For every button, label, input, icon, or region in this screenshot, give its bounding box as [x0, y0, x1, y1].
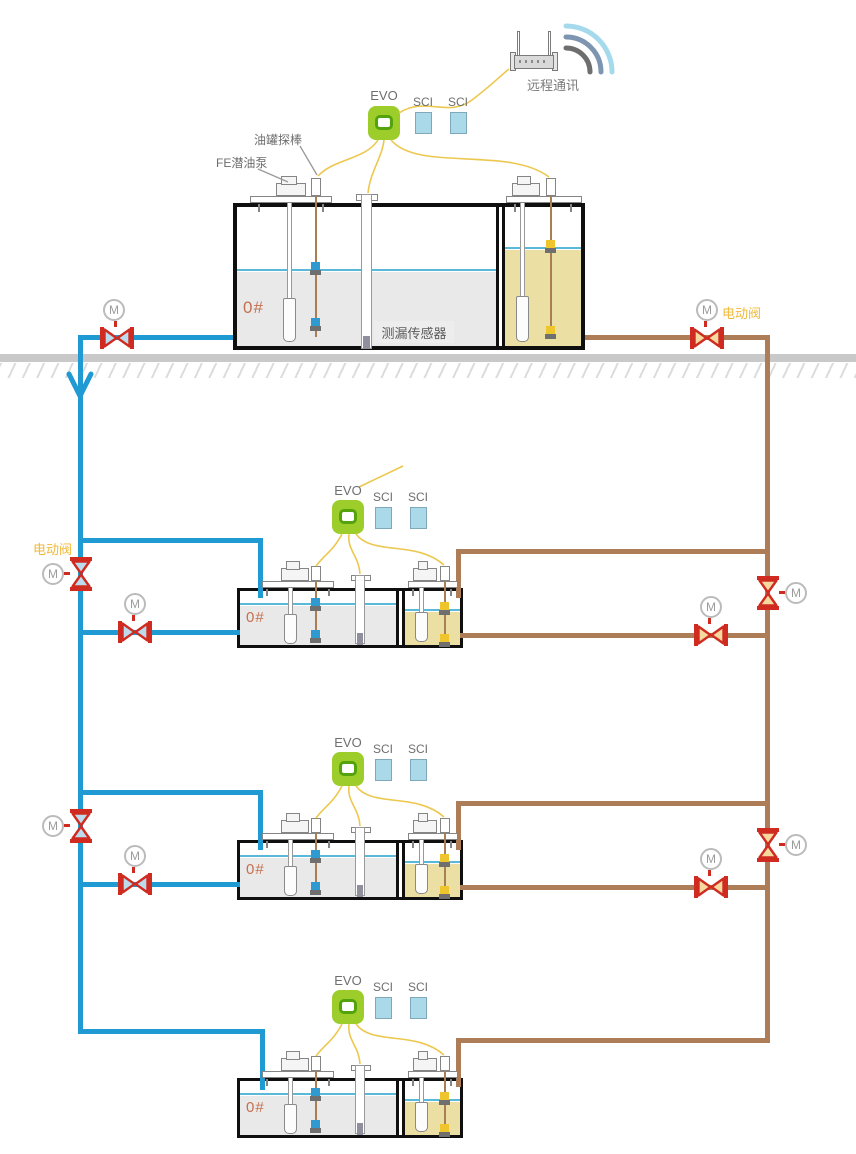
tank2-manhole-lid [408, 581, 458, 588]
submersible-pump-motor-icon [276, 183, 306, 196]
router-antenna-icon [548, 31, 551, 56]
tank2 [237, 588, 463, 648]
tank-probe-head-icon [311, 818, 321, 833]
level-float-icon [311, 318, 320, 326]
float-collar [545, 334, 556, 339]
sci-label: SCI [438, 95, 478, 109]
tank-probe-head-icon [546, 178, 556, 196]
tank2-divider [396, 591, 399, 645]
submersible-pump-motor-icon [512, 183, 540, 196]
float-collar [439, 862, 450, 867]
motor-valve-icon [70, 809, 92, 843]
router-antenna-icon [517, 31, 520, 56]
level-float-icon [440, 602, 449, 610]
float-collar [439, 610, 450, 615]
lid-leg [266, 1079, 268, 1086]
tank1-grade-label: 0# [243, 298, 264, 318]
sci-module-icon [410, 507, 427, 529]
submersible-pump-icon [516, 296, 529, 342]
float-collar [310, 270, 321, 275]
sci-module-icon [410, 759, 427, 781]
evo-label: EVO [328, 973, 368, 988]
leak-sensor-tip [357, 1123, 363, 1135]
lid-leg [450, 589, 452, 596]
return-fill-pipe-row3 [456, 801, 770, 806]
submersible-pump-motor-icon [413, 820, 437, 833]
fill-pipe-row3-drop [258, 790, 263, 850]
level-float-icon [440, 886, 449, 894]
motor-indicator: M [700, 848, 722, 870]
float-collar [310, 1096, 321, 1101]
return-main-pipe [765, 335, 770, 1043]
float-collar [310, 890, 321, 895]
float-collar [310, 1128, 321, 1133]
float-collar [439, 1100, 450, 1105]
tank-probe-head-icon [311, 178, 321, 196]
level-float-icon [311, 1120, 320, 1128]
tank4-divider [402, 1081, 405, 1135]
sci-label: SCI [398, 980, 438, 994]
motor-valve-icon [70, 557, 92, 591]
evo-label: EVO [328, 735, 368, 750]
lid-leg [258, 204, 260, 212]
pump-tube [419, 1078, 424, 1102]
pump-tube [419, 840, 424, 864]
level-float-icon [440, 854, 449, 862]
pump-tube [288, 840, 293, 866]
sci-module-icon [375, 759, 392, 781]
float-collar [310, 638, 321, 643]
motor-indicator: M [696, 299, 718, 321]
return-fill-row2-drop [456, 549, 461, 598]
supply-pipe-row4-drop [260, 1029, 265, 1090]
motor-indicator: M [124, 845, 146, 867]
pump-tube [419, 588, 424, 612]
probe-rod [550, 196, 552, 338]
submersible-pump-motor-icon [413, 1058, 437, 1071]
float-collar [310, 858, 321, 863]
motor-indicator: M [785, 582, 807, 604]
fill-pipe-row2-drop [258, 538, 263, 598]
ground-hatching [0, 363, 856, 378]
valve-stem [114, 321, 117, 327]
sci-label: SCI [398, 742, 438, 756]
motor-indicator: M [700, 596, 722, 618]
submersible-pump-icon [415, 612, 428, 642]
submersible-pump-icon [284, 866, 297, 896]
pump-tube [288, 1078, 293, 1104]
motor-indicator: M [124, 593, 146, 615]
sci-module-icon [375, 997, 392, 1019]
submersible-pump-motor-icon [281, 1058, 309, 1071]
probe-label-leader [300, 146, 317, 175]
pump-tube [287, 203, 292, 298]
motor-valve-icon [757, 576, 779, 610]
lid-leg [328, 1079, 330, 1086]
tank3-divider [402, 843, 405, 897]
tank-probe-head-icon [440, 818, 450, 833]
evo-label: EVO [328, 483, 368, 498]
leak-sensor-tip [357, 633, 363, 645]
router-leds [519, 60, 549, 63]
tank3-divider [396, 843, 399, 897]
lid-leg [328, 589, 330, 596]
wifi-signal-icon [566, 26, 612, 72]
lid-leg [412, 589, 414, 596]
lid-leg [412, 841, 414, 848]
float-collar [439, 1132, 450, 1137]
diagram-canvas: 0# 测漏传感器 EVO SCI SCI 油罐探棒 FE潜油泵 远程通讯 M M… [0, 0, 856, 1154]
tank1-manhole-lid [250, 196, 332, 203]
sci-label: SCI [363, 490, 403, 504]
tank1-divider [496, 207, 499, 346]
valve-stem [64, 824, 70, 827]
motor-indicator: M [42, 563, 64, 585]
electric-valve-label: 电动阀 [33, 539, 72, 558]
return-fill-row3-drop [456, 801, 461, 850]
ground-line [0, 354, 856, 362]
leak-sensor-label: 测漏传感器 [374, 321, 454, 343]
tank-probe-head-icon [311, 1056, 321, 1071]
tank2-grade-label: 0# [246, 609, 265, 626]
return-pipe-tank1 [585, 335, 770, 340]
tank2-divider [402, 591, 405, 645]
lid-leg [266, 589, 268, 596]
return-fill-pipe-row2 [456, 549, 770, 554]
level-float-icon [311, 1088, 320, 1096]
tank4-divider [396, 1081, 399, 1135]
leak-sensor-tip [363, 336, 370, 349]
sci-label: SCI [363, 742, 403, 756]
level-float-icon [546, 240, 555, 248]
evo-console-icon [332, 752, 364, 786]
evo-console-icon [368, 106, 400, 140]
submersible-pump-icon [415, 1102, 428, 1132]
lid-leg [450, 841, 452, 848]
tank4-grade-label: 0# [246, 1099, 265, 1116]
level-float-icon [546, 326, 555, 334]
motor-valve-icon [100, 327, 134, 349]
valve-stem [708, 618, 711, 624]
motor-valve-icon [757, 828, 779, 862]
float-collar [545, 248, 556, 253]
level-float-icon [311, 598, 320, 606]
lid-leg [328, 841, 330, 848]
valve-stem [132, 867, 135, 873]
tank1-manhole-lid [506, 196, 582, 203]
lid-leg [266, 841, 268, 848]
suction-pipe-row2 [78, 630, 240, 635]
level-float-icon [440, 634, 449, 642]
fill-pipe-row3 [78, 790, 263, 795]
tank-probe-head-icon [440, 566, 450, 581]
float-collar [439, 642, 450, 647]
evo-label: EVO [364, 88, 404, 103]
motor-indicator: M [785, 834, 807, 856]
sci-module-icon [410, 997, 427, 1019]
motor-valve-icon [690, 327, 724, 349]
valve-stem [132, 615, 135, 621]
tank1-divider [502, 207, 505, 346]
level-float-icon [440, 1092, 449, 1100]
float-collar [439, 894, 450, 899]
level-float-icon [311, 262, 320, 270]
valve-stem [64, 572, 70, 575]
tank-probe-label: 油罐探棒 [254, 131, 302, 148]
submersible-pump-icon [284, 614, 297, 644]
pump-tube [520, 203, 525, 296]
tank4-manhole-lid [408, 1071, 458, 1078]
supply-main-pipe [78, 335, 83, 1034]
tank4-manhole-lid [262, 1071, 334, 1078]
motor-valve-icon [694, 624, 728, 646]
remote-comm-label: 远程通讯 [527, 75, 579, 94]
lid-leg [322, 204, 324, 212]
evo-console-icon [332, 990, 364, 1024]
tank-probe-head-icon [440, 1056, 450, 1071]
return-pipe-row4 [456, 1038, 770, 1043]
suction-pipe-row3 [78, 882, 240, 887]
submersible-pump-motor-icon [281, 568, 309, 581]
lid-leg [514, 204, 516, 212]
motor-valve-icon [694, 876, 728, 898]
float-collar [310, 326, 321, 331]
motor-valve-icon [118, 621, 152, 643]
tank2-manhole-lid [262, 581, 334, 588]
tank3 [237, 840, 463, 900]
electric-valve-label: 电动阀 [722, 303, 761, 322]
sci-label: SCI [398, 490, 438, 504]
fill-pipe-row2 [78, 538, 263, 543]
level-float-icon [311, 850, 320, 858]
sci-module-icon [415, 112, 432, 134]
submersible-pump-icon [415, 864, 428, 894]
submersible-pump-motor-icon [281, 820, 309, 833]
level-float-icon [311, 630, 320, 638]
sci-label: SCI [363, 980, 403, 994]
tank4 [237, 1078, 463, 1138]
pump-label: FE潜油泵 [216, 154, 267, 171]
tank3-grade-label: 0# [246, 861, 265, 878]
valve-stem [704, 321, 707, 327]
level-float-icon [311, 882, 320, 890]
pump-tube [288, 588, 293, 614]
submersible-pump-icon [283, 298, 296, 342]
lid-leg [450, 1079, 452, 1086]
tank-probe-head-icon [311, 566, 321, 581]
valve-stem [708, 870, 711, 876]
supply-pipe-row4 [78, 1029, 265, 1034]
leak-sensor-tip [357, 885, 363, 897]
level-float-icon [440, 1124, 449, 1132]
lid-leg [570, 204, 572, 212]
float-collar [310, 606, 321, 611]
leak-sensor-tube-icon [361, 194, 372, 349]
submersible-pump-icon [284, 1104, 297, 1134]
sci-module-icon [450, 112, 467, 134]
sci-label: SCI [403, 95, 443, 109]
motor-indicator: M [103, 299, 125, 321]
tank3-manhole-lid [262, 833, 334, 840]
tank3-manhole-lid [408, 833, 458, 840]
return-pipe-row4-drop [456, 1038, 461, 1087]
evo-console-icon [332, 500, 364, 534]
submersible-pump-motor-icon [413, 568, 437, 581]
sci-module-icon [375, 507, 392, 529]
motor-valve-icon [118, 873, 152, 895]
motor-indicator: M [42, 815, 64, 837]
lid-leg [412, 1079, 414, 1086]
